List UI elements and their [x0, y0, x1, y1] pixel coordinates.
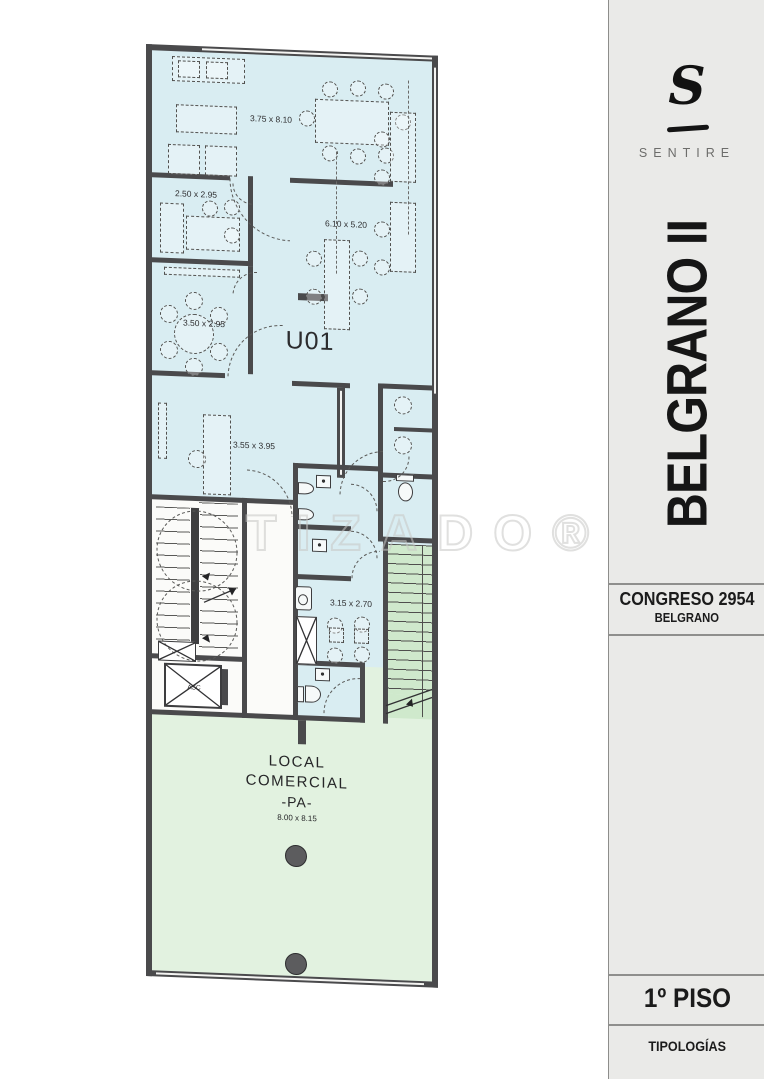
- floor-label: 1º PISO: [609, 983, 764, 1014]
- unit-label: U01: [286, 326, 335, 357]
- address-line1: CONGRESO 2954: [609, 589, 764, 610]
- divider: [609, 634, 764, 636]
- brand-name: SENTIRE: [609, 146, 764, 160]
- elevator-label: ASC: [187, 684, 200, 692]
- watermark: TIZADO®: [246, 504, 609, 562]
- dimension-label: 3.15 x 2.70: [330, 597, 372, 609]
- typology-sheet: 3.75 x 8.102.50 x 2.956.10 x 5.203.50 x …: [0, 0, 764, 1079]
- project-title-wrap: BELGRANO II: [609, 188, 764, 560]
- address-line2: BELGRANO: [609, 611, 764, 625]
- commercial-label-3: -PA-: [282, 793, 313, 810]
- project-title: BELGRANO II: [654, 220, 720, 528]
- dimension-label: 6.10 x 5.20: [325, 218, 367, 230]
- dimension-label: 3.50 x 2.95: [183, 317, 225, 329]
- dimension-label: 3.55 x 3.95: [233, 439, 275, 451]
- commercial-dimension: 8.00 x 8.15: [277, 813, 317, 824]
- brand-logo-icon: S: [609, 56, 764, 117]
- footer-label: TIPOLOGÍAS: [609, 1038, 764, 1054]
- dimension-label: 3.75 x 8.10: [250, 113, 292, 125]
- sidebar: S SENTIRE BELGRANO II CONGRESO 2954 BELG…: [608, 0, 764, 1079]
- commercial-label-1: LOCAL: [269, 752, 326, 771]
- divider: [609, 974, 764, 976]
- dimension-label: 2.50 x 2.95: [175, 188, 217, 200]
- divider: [609, 583, 764, 585]
- divider: [609, 1024, 764, 1026]
- brand-logo-underline: [667, 125, 709, 133]
